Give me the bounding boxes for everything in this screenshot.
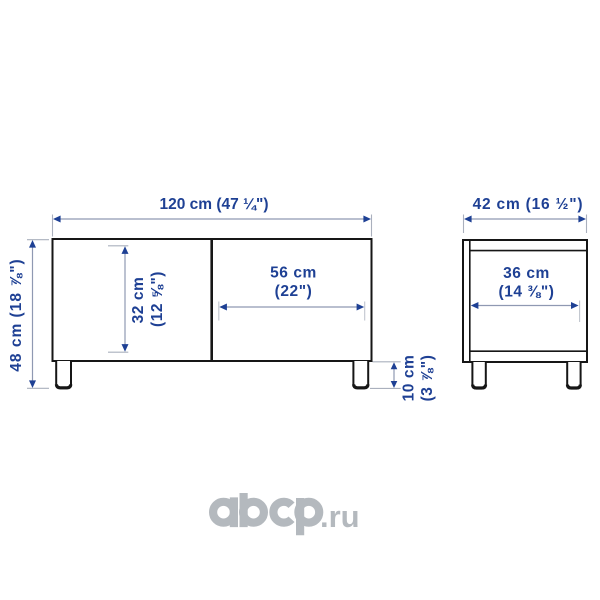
svg-text:120 cm (47 ¼"): 120 cm (47 ¼"): [159, 196, 268, 213]
svg-text:42 cm (16 ½"): 42 cm (16 ½"): [473, 196, 584, 213]
svg-text:(22"): (22"): [275, 283, 313, 300]
svg-text:48 cm (18 ⅞"): 48 cm (18 ⅞"): [8, 258, 25, 371]
svg-text:56 cm: 56 cm: [270, 265, 317, 282]
svg-text:10 cm: 10 cm: [401, 355, 418, 402]
svg-text:(14 ⅜"): (14 ⅜"): [499, 284, 555, 301]
svg-text:(12 ⅝"): (12 ⅝"): [149, 271, 166, 327]
svg-text:36 cm: 36 cm: [503, 265, 550, 282]
svg-text:32 cm: 32 cm: [130, 277, 147, 324]
svg-text:(3 ⅞"): (3 ⅞"): [419, 355, 436, 402]
svg-text:.ru: .ru: [320, 499, 360, 534]
